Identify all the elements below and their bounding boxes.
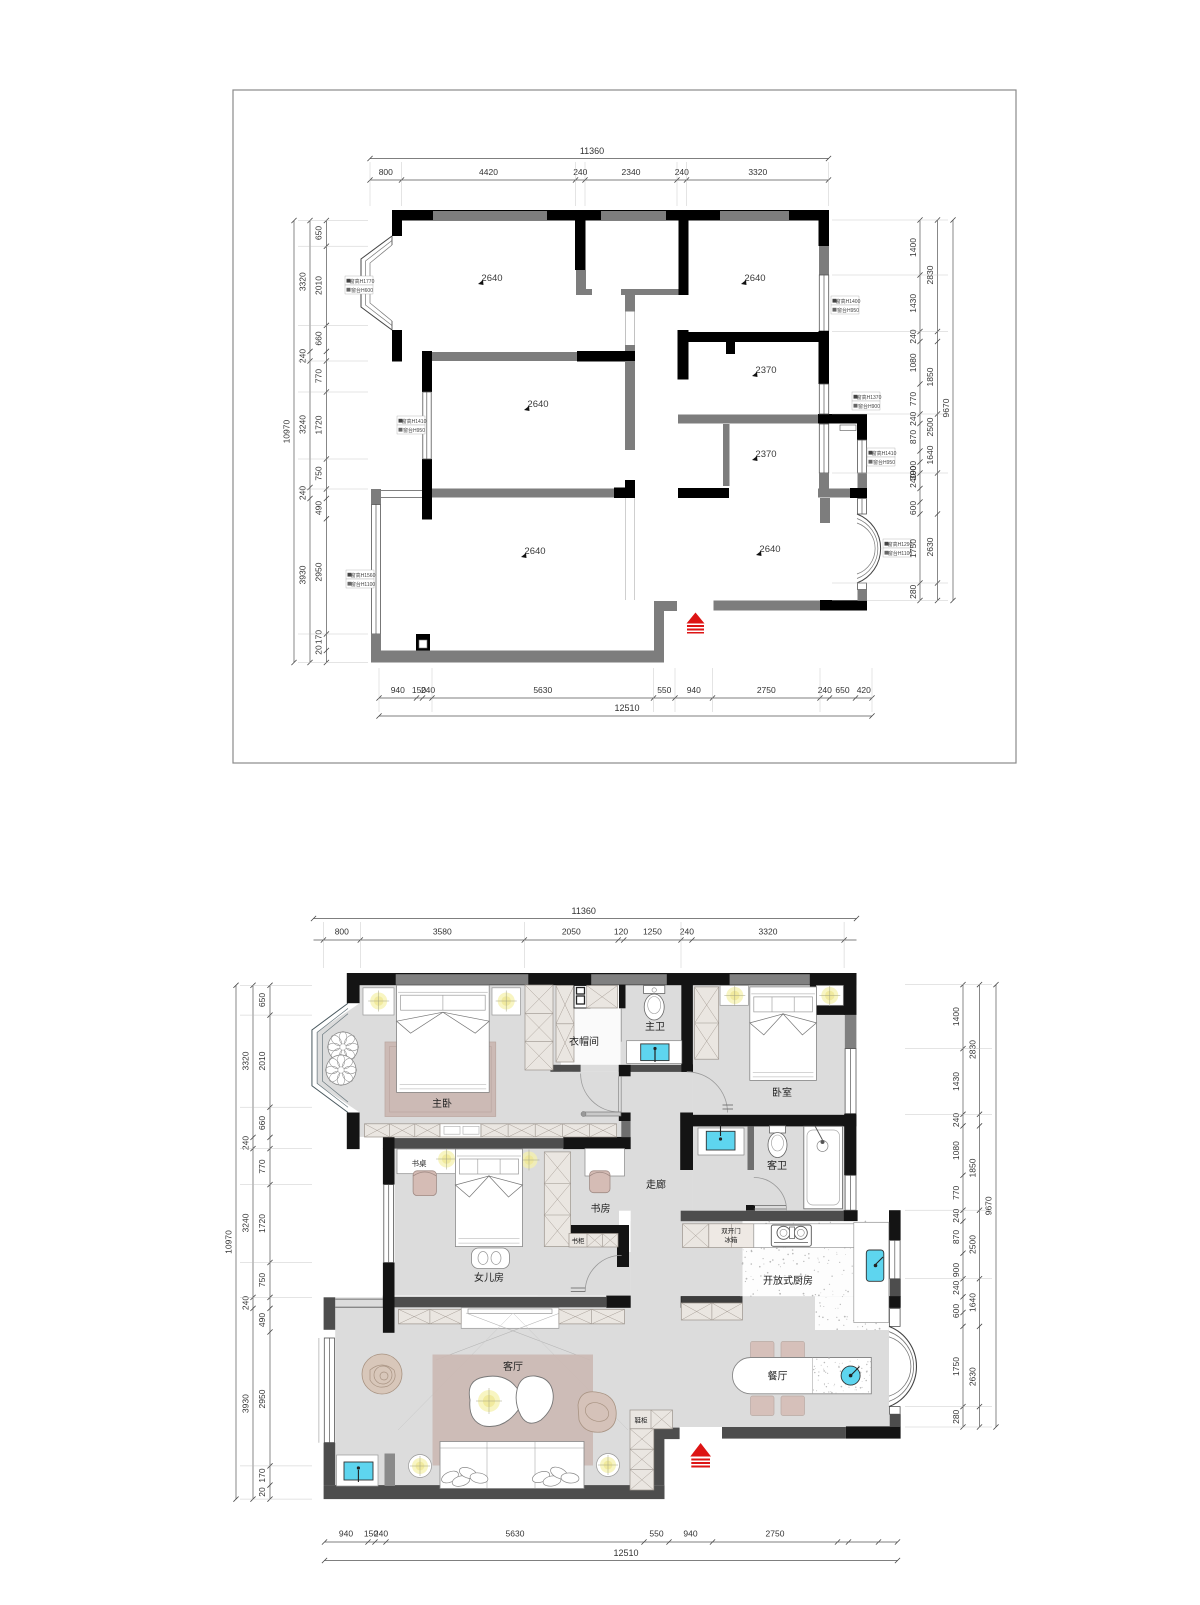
svg-text:窗高H1400: 窗高H1400: [836, 298, 861, 305]
svg-text:3580: 3580: [433, 927, 452, 937]
svg-text:940: 940: [687, 685, 701, 695]
svg-text:240: 240: [241, 1136, 251, 1150]
svg-text:3240: 3240: [241, 1213, 251, 1232]
svg-text:5630: 5630: [533, 685, 552, 695]
svg-text:550: 550: [657, 685, 671, 695]
svg-text:1720: 1720: [257, 1214, 267, 1233]
svg-text:770: 770: [257, 1159, 267, 1173]
svg-text:2750: 2750: [757, 685, 776, 695]
svg-text:1250: 1250: [643, 927, 662, 937]
svg-text:600: 600: [951, 1304, 961, 1318]
svg-text:2950: 2950: [314, 562, 324, 581]
svg-text:240: 240: [298, 486, 308, 500]
svg-text:窗高H1560: 窗高H1560: [351, 572, 376, 579]
svg-text:女儿房: 女儿房: [474, 1271, 504, 1284]
svg-text:鞋柜: 鞋柜: [635, 1416, 649, 1425]
svg-text:2640: 2640: [527, 399, 548, 410]
svg-text:2050: 2050: [562, 927, 581, 937]
svg-text:2630: 2630: [968, 1367, 978, 1386]
svg-text:1850: 1850: [968, 1158, 978, 1177]
svg-text:主卫: 主卫: [645, 1021, 665, 1033]
svg-text:490: 490: [257, 1313, 267, 1327]
svg-text:870: 870: [908, 430, 918, 444]
svg-text:800: 800: [335, 927, 349, 937]
svg-text:3240: 3240: [298, 415, 308, 434]
svg-text:1720: 1720: [314, 415, 324, 434]
svg-text:940: 940: [391, 685, 405, 695]
svg-text:4420: 4420: [479, 167, 498, 177]
svg-text:2640: 2640: [759, 544, 780, 555]
svg-text:11360: 11360: [572, 906, 596, 916]
svg-text:1080: 1080: [951, 1141, 961, 1160]
svg-text:2370: 2370: [755, 449, 776, 460]
svg-text:240: 240: [951, 1208, 961, 1222]
svg-text:2370: 2370: [755, 365, 776, 376]
svg-text:窗高H1370: 窗高H1370: [857, 394, 882, 401]
svg-text:240: 240: [421, 685, 435, 695]
svg-text:3320: 3320: [759, 927, 778, 937]
svg-text:窗台H950: 窗台H950: [837, 307, 859, 314]
svg-text:1850: 1850: [925, 367, 935, 386]
svg-text:240: 240: [951, 1113, 961, 1127]
svg-text:280: 280: [951, 1409, 961, 1423]
svg-text:650: 650: [257, 993, 267, 1007]
svg-text:600: 600: [908, 501, 918, 515]
svg-text:12510: 12510: [613, 1548, 638, 1558]
svg-text:650: 650: [835, 685, 849, 695]
svg-text:11360: 11360: [580, 146, 604, 156]
svg-text:主卧: 主卧: [432, 1097, 452, 1110]
svg-text:2500: 2500: [925, 417, 935, 436]
svg-text:660: 660: [257, 1116, 267, 1130]
svg-text:420: 420: [857, 685, 871, 695]
svg-text:240: 240: [908, 411, 918, 425]
svg-text:2640: 2640: [481, 273, 502, 284]
svg-text:240: 240: [680, 927, 694, 937]
svg-text:750: 750: [257, 1273, 267, 1287]
svg-text:170: 170: [257, 1468, 267, 1482]
svg-text:书柜: 书柜: [572, 1236, 586, 1245]
svg-text:窗台H1100: 窗台H1100: [351, 581, 376, 588]
svg-text:770: 770: [951, 1185, 961, 1199]
svg-text:1750: 1750: [908, 539, 918, 558]
svg-text:2010: 2010: [314, 276, 324, 295]
svg-text:1400: 1400: [908, 238, 918, 257]
svg-text:550: 550: [649, 1529, 663, 1539]
svg-text:800: 800: [379, 167, 393, 177]
svg-text:1430: 1430: [951, 1072, 961, 1091]
svg-text:1640: 1640: [968, 1293, 978, 1312]
svg-text:10970: 10970: [282, 420, 292, 444]
svg-text:20: 20: [314, 645, 324, 655]
svg-text:1080: 1080: [908, 353, 918, 372]
svg-text:1750: 1750: [951, 1357, 961, 1376]
svg-text:窗台H600: 窗台H600: [351, 287, 373, 294]
svg-text:12510: 12510: [614, 703, 639, 713]
svg-text:9670: 9670: [984, 1196, 994, 1215]
svg-text:940: 940: [683, 1529, 697, 1539]
svg-text:2500: 2500: [968, 1235, 978, 1254]
svg-text:120: 120: [614, 927, 628, 937]
svg-text:2830: 2830: [968, 1040, 978, 1059]
svg-text:窗台H950: 窗台H950: [873, 459, 895, 466]
svg-text:客卫: 客卫: [767, 1159, 787, 1172]
svg-text:书房: 书房: [591, 1202, 611, 1215]
svg-text:客厅: 客厅: [503, 1360, 523, 1373]
svg-text:10970: 10970: [224, 1230, 234, 1254]
svg-text:走廊: 走廊: [646, 1178, 666, 1191]
svg-text:770: 770: [908, 392, 918, 406]
svg-text:2640: 2640: [524, 546, 545, 557]
svg-text:660: 660: [314, 331, 324, 345]
svg-text:餐厅: 餐厅: [768, 1370, 788, 1383]
svg-text:窗台H950: 窗台H950: [403, 427, 425, 434]
svg-text:5630: 5630: [506, 1529, 525, 1539]
svg-text:240: 240: [241, 1296, 251, 1310]
svg-text:3930: 3930: [298, 565, 308, 584]
svg-text:170: 170: [314, 630, 324, 644]
svg-text:280: 280: [908, 584, 918, 598]
svg-text:1400: 1400: [951, 1007, 961, 1026]
svg-text:940: 940: [339, 1529, 353, 1539]
svg-text:2010: 2010: [257, 1051, 267, 1070]
svg-text:窗台H900: 窗台H900: [858, 403, 880, 410]
svg-text:书桌: 书桌: [412, 1158, 427, 1168]
svg-text:9670: 9670: [941, 398, 951, 417]
svg-text:3320: 3320: [241, 1051, 251, 1070]
svg-text:窗高H1770: 窗高H1770: [350, 278, 375, 285]
svg-text:750: 750: [314, 466, 324, 480]
svg-text:窗高H1410: 窗高H1410: [402, 418, 427, 425]
svg-text:2950: 2950: [257, 1389, 267, 1408]
svg-text:冰箱: 冰箱: [725, 1235, 739, 1244]
svg-text:开放式厨房: 开放式厨房: [763, 1274, 813, 1287]
svg-text:2630: 2630: [925, 537, 935, 556]
svg-text:240: 240: [908, 473, 918, 487]
svg-text:2640: 2640: [744, 273, 765, 284]
svg-text:3320: 3320: [748, 167, 767, 177]
svg-text:650: 650: [314, 226, 324, 240]
svg-text:490: 490: [314, 501, 324, 515]
svg-text:900: 900: [951, 1263, 961, 1277]
svg-text:3320: 3320: [298, 272, 308, 291]
svg-text:2340: 2340: [622, 167, 641, 177]
svg-text:2750: 2750: [766, 1529, 785, 1539]
svg-text:1430: 1430: [908, 294, 918, 313]
svg-text:窗高H1410: 窗高H1410: [872, 450, 897, 457]
svg-text:870: 870: [951, 1230, 961, 1244]
svg-text:20: 20: [257, 1487, 267, 1497]
svg-text:卧室: 卧室: [772, 1086, 792, 1099]
svg-text:1640: 1640: [925, 445, 935, 464]
svg-text:240: 240: [951, 1280, 961, 1294]
svg-text:衣帽间: 衣帽间: [569, 1035, 599, 1048]
svg-text:770: 770: [314, 369, 324, 383]
svg-text:3930: 3930: [241, 1394, 251, 1413]
svg-text:240: 240: [374, 1529, 388, 1539]
svg-text:双开门: 双开门: [721, 1226, 741, 1235]
